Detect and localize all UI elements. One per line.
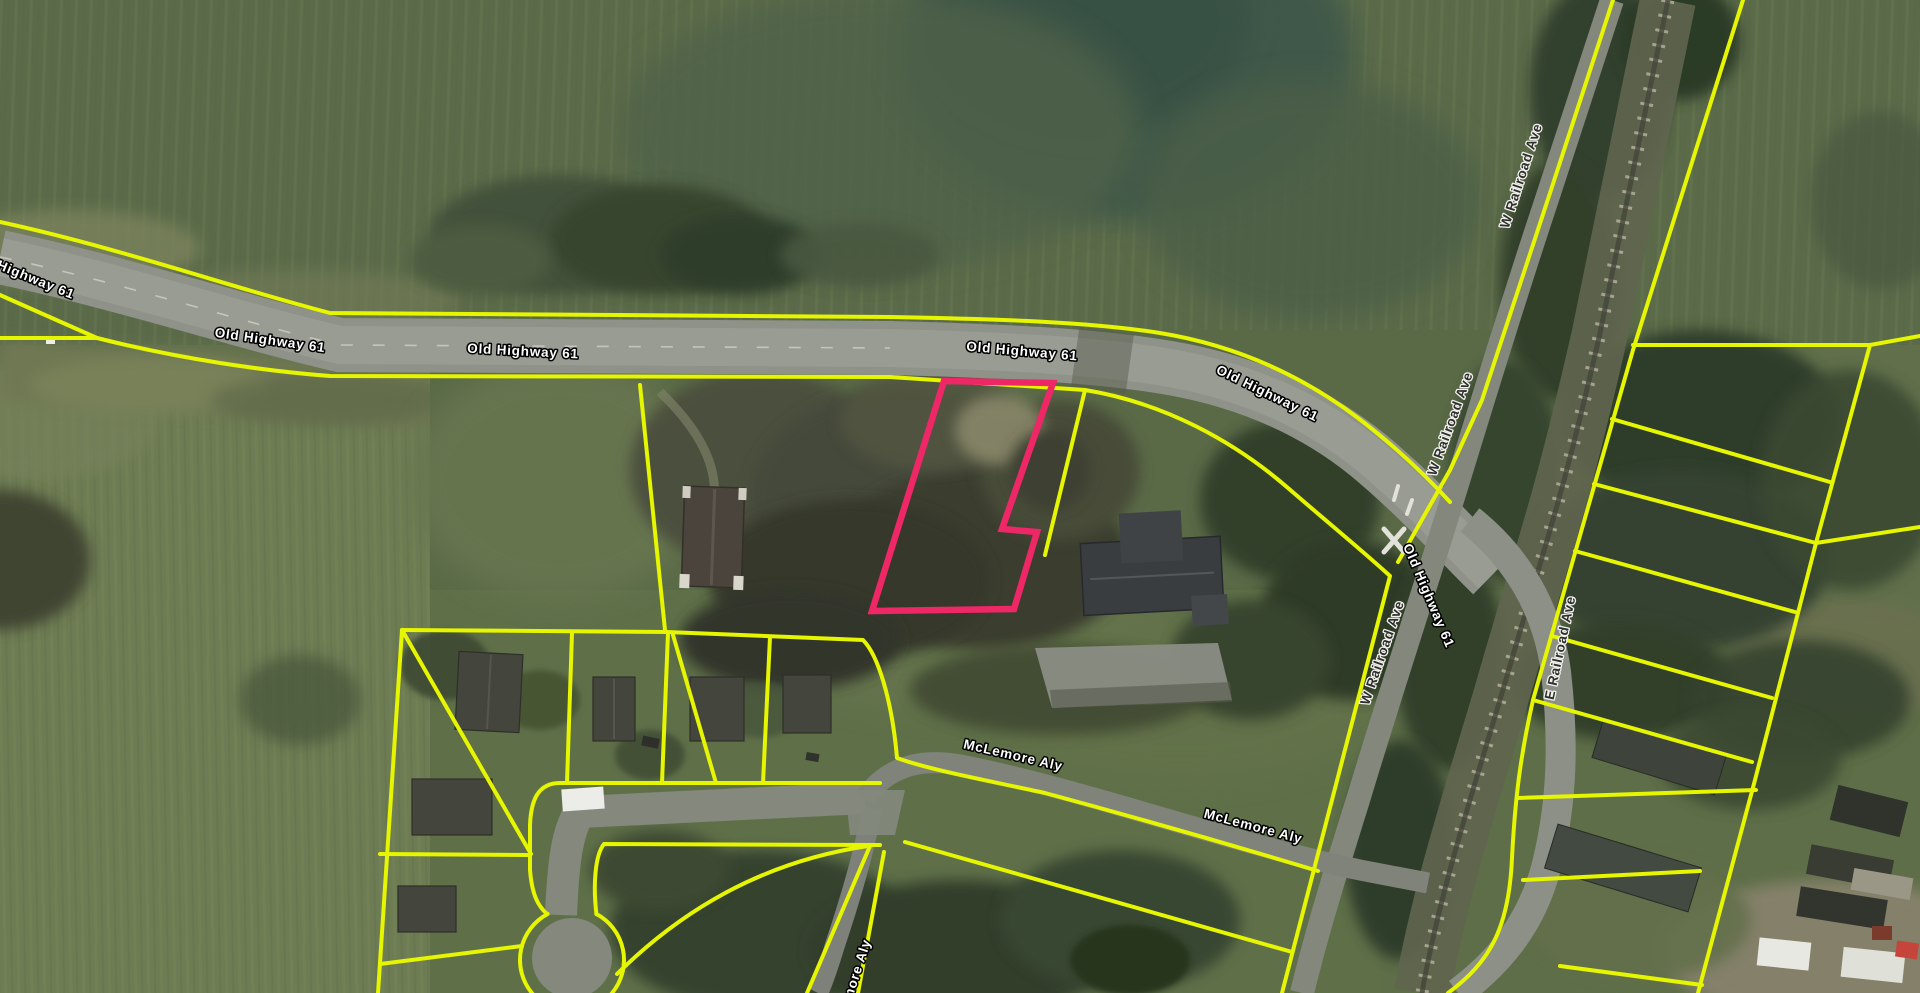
white-truck xyxy=(561,787,604,812)
building xyxy=(783,675,831,733)
building xyxy=(398,886,456,932)
building xyxy=(412,779,492,835)
map-canvas[interactable]: Old Highway 61Old Highway 61Old Highway … xyxy=(0,0,1920,993)
building xyxy=(679,486,747,590)
building xyxy=(690,677,744,741)
